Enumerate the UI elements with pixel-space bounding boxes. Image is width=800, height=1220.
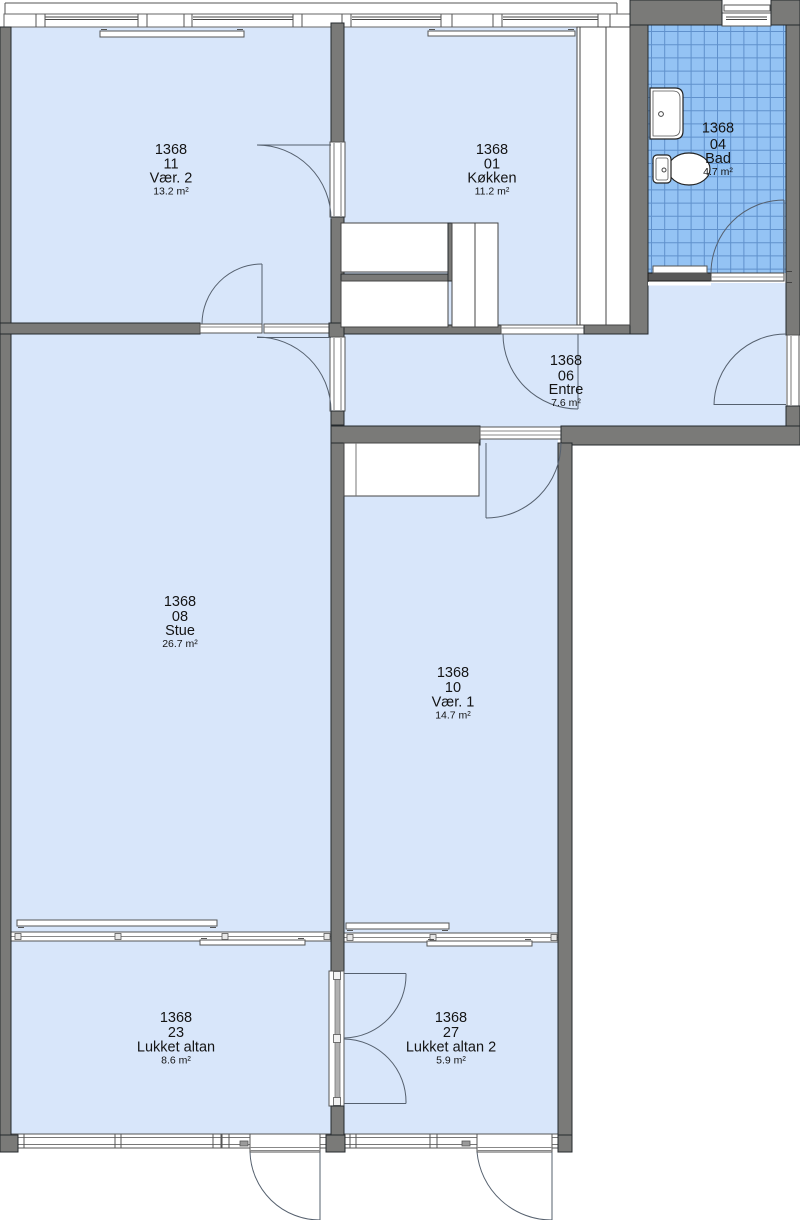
svg-text:4.7 m²: 4.7 m² [703, 166, 733, 178]
svg-text:26.7 m²: 26.7 m² [162, 638, 198, 650]
svg-text:Lukket altan 2: Lukket altan 2 [406, 1040, 496, 1056]
svg-text:Entre: Entre [549, 382, 584, 398]
svg-text:1368: 1368 [164, 594, 196, 610]
svg-text:1368: 1368 [702, 121, 734, 137]
svg-text:1368: 1368 [550, 353, 582, 369]
svg-text:5.9 m²: 5.9 m² [436, 1055, 466, 1067]
svg-text:1368: 1368 [437, 665, 469, 681]
svg-text:Køkken: Køkken [467, 171, 516, 187]
svg-text:7.6 m²: 7.6 m² [551, 397, 581, 409]
svg-text:Lukket altan: Lukket altan [137, 1040, 215, 1056]
svg-text:Stue: Stue [165, 623, 195, 639]
svg-text:13.2 m²: 13.2 m² [153, 186, 189, 198]
svg-text:14.7 m²: 14.7 m² [435, 710, 471, 722]
svg-text:Vær. 1: Vær. 1 [432, 695, 475, 711]
svg-text:1368: 1368 [160, 1010, 192, 1026]
svg-text:Vær. 2: Vær. 2 [150, 171, 193, 187]
svg-text:Bad: Bad [705, 151, 731, 167]
svg-text:11.2 m²: 11.2 m² [475, 186, 510, 198]
svg-text:8.6 m²: 8.6 m² [161, 1055, 191, 1067]
svg-text:1368: 1368 [435, 1010, 467, 1026]
